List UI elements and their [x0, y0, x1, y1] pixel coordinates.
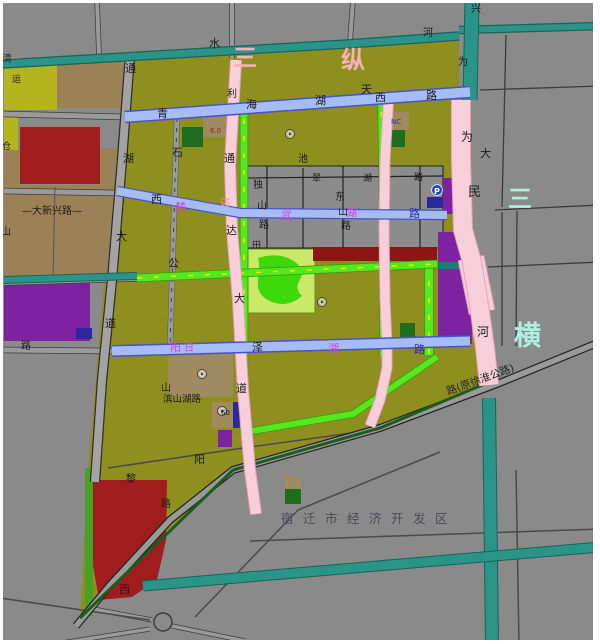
label-dongshan-1: 东	[335, 190, 345, 203]
label-r3-1: 阳	[170, 341, 181, 354]
label-r1-7: 天	[361, 83, 372, 96]
zone-green-e	[285, 489, 301, 504]
zone-navy-left	[76, 328, 92, 339]
label-district-name: 宿迁市经济开发区	[281, 511, 457, 526]
zone-darkred-strip	[313, 247, 437, 261]
label-tonghu-3: 大	[116, 229, 127, 243]
label-sanheng-2: 横	[514, 321, 541, 352]
landmark-icon-1-dot	[289, 133, 291, 135]
label-r2-3: 武	[281, 209, 292, 222]
label-tongda-4: 道	[236, 381, 247, 395]
label-tongda-pink: 达	[220, 197, 230, 209]
label-parcel-60b: 60	[221, 409, 230, 417]
label-r1-6: 利	[227, 88, 237, 100]
label-r1-4: 西	[375, 91, 386, 104]
planning-map-canvas: 三纵三横宿迁市经济开发区路(原徐淮公路)青海湖西路利天水兴河为通湖大道石公通达大…	[0, 0, 600, 644]
label-r3-4: 湖	[328, 342, 339, 355]
label-edge-1: 清	[2, 52, 12, 65]
roundabout	[154, 613, 172, 631]
label-edge-5: 路	[21, 339, 31, 352]
label-r2-2: 楚	[175, 200, 186, 214]
label-r2-4: 湖	[346, 206, 357, 219]
zone-green-strip-west	[85, 468, 93, 616]
label-sanzong-2: 纵	[341, 46, 365, 74]
label-weimin-3: 民	[468, 185, 481, 200]
zone-brown-left-main	[18, 185, 113, 278]
label-tonghu-2: 湖	[123, 152, 134, 165]
label-r2-5: 路	[409, 207, 420, 220]
road-west-approach-1	[4, 114, 125, 117]
canal-vertical-north	[470, 2, 472, 100]
label-edge-2: 运	[12, 74, 21, 85]
zone-navy-center	[427, 197, 443, 208]
label-r3-2: 日	[184, 343, 194, 354]
label-dushan-1: 独	[253, 178, 263, 191]
label-dongshan-3: 路	[341, 219, 351, 232]
canal-top-east	[459, 26, 600, 30]
label-cuihu-1: 翠	[312, 173, 321, 184]
zone-purple-d	[218, 430, 232, 447]
zone-tan-e	[285, 476, 301, 489]
landmark-icon-3-dot	[321, 301, 323, 303]
label-ne-2: 河	[423, 27, 433, 39]
label-tian-block: 田	[252, 240, 261, 251]
zone-red-upper-left	[20, 127, 100, 184]
label-shui: 水	[209, 37, 220, 50]
zone-green-a	[182, 127, 203, 147]
canal-vertical-south	[489, 398, 492, 644]
label-shan-mid: 山	[161, 382, 171, 394]
label-tongda-2: 达	[226, 224, 237, 237]
label-r3-3: 泽	[252, 341, 263, 354]
road-top-stub-west	[97, 0, 99, 55]
city-planning-map-screenshot: 三纵三横宿迁市经济开发区路(原徐淮公路)青海湖西路利天水兴河为通湖大道石公通达大…	[0, 0, 600, 644]
label-parcel-nc: NC	[391, 118, 401, 126]
zone-brown-left-a	[4, 150, 20, 278]
label-weimin-5: 路	[493, 331, 502, 343]
label-gong: 公	[168, 257, 179, 270]
label-dushan-2: 山	[257, 200, 267, 212]
label-chi: 池	[298, 152, 308, 165]
label-lu-south: 路	[161, 497, 171, 510]
label-cuihu-2: 湖	[363, 173, 372, 184]
label-sanheng-1: 三	[508, 185, 532, 213]
label-r3-5: 路	[414, 343, 425, 356]
label-ne-1: 兴	[471, 3, 481, 15]
label-tongda-1: 通	[224, 152, 235, 165]
label-tongda-3: 大	[234, 291, 245, 305]
label-tonghu-1: 通	[125, 62, 136, 75]
canal-mid-west	[4, 276, 137, 280]
label-cuihu-3: 路	[414, 171, 423, 183]
landmark-icon-2-dot	[201, 373, 203, 375]
label-li-south: 黎	[126, 472, 136, 485]
map-layers: 三纵三横宿迁市经济开发区路(原徐淮公路)青海湖西路利天水兴河为通湖大道石公通达大…	[0, 0, 600, 644]
label-weimin-1: 为	[461, 130, 473, 144]
label-sanzong-1: 三	[233, 44, 257, 72]
label-shi: 石	[172, 146, 183, 159]
label-daxinxing-road: —大新兴路—	[22, 204, 82, 217]
label-weimin-4: 河	[477, 325, 489, 339]
label-r1-3: 湖	[315, 94, 326, 107]
label-r2-1: 西	[151, 193, 162, 206]
label-edge-3: 仓	[2, 140, 11, 152]
label-parcel-60a: 6.0	[210, 127, 221, 135]
label-binshanhu-road: 滨山湖路	[163, 393, 202, 405]
label-tonghu-4: 道	[105, 316, 116, 330]
label-ne-3: 为	[458, 56, 468, 68]
zone-park-lawn	[258, 255, 302, 304]
label-r1-2: 海	[246, 97, 257, 111]
label-r1-5: 路	[426, 89, 437, 102]
label-weimin-2: 大	[480, 146, 491, 160]
road-west-approach-2	[4, 191, 117, 193]
label-yang-south: 阳	[194, 453, 205, 466]
label-parking-p: P	[434, 187, 440, 196]
label-xi-south: 西	[119, 583, 130, 596]
label-dushan-3: 路	[259, 218, 269, 231]
label-r1-1: 青	[157, 107, 168, 120]
